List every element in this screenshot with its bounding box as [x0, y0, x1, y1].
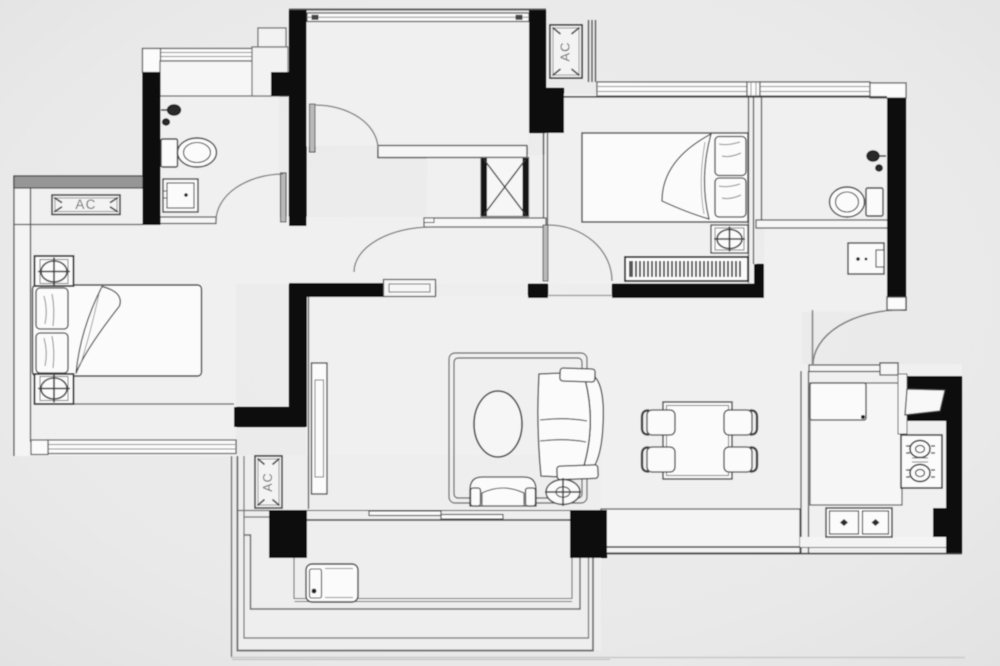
svg-text:AC: AC — [75, 197, 96, 212]
svg-text:AC: AC — [557, 41, 572, 61]
svg-text:AC: AC — [261, 472, 275, 491]
